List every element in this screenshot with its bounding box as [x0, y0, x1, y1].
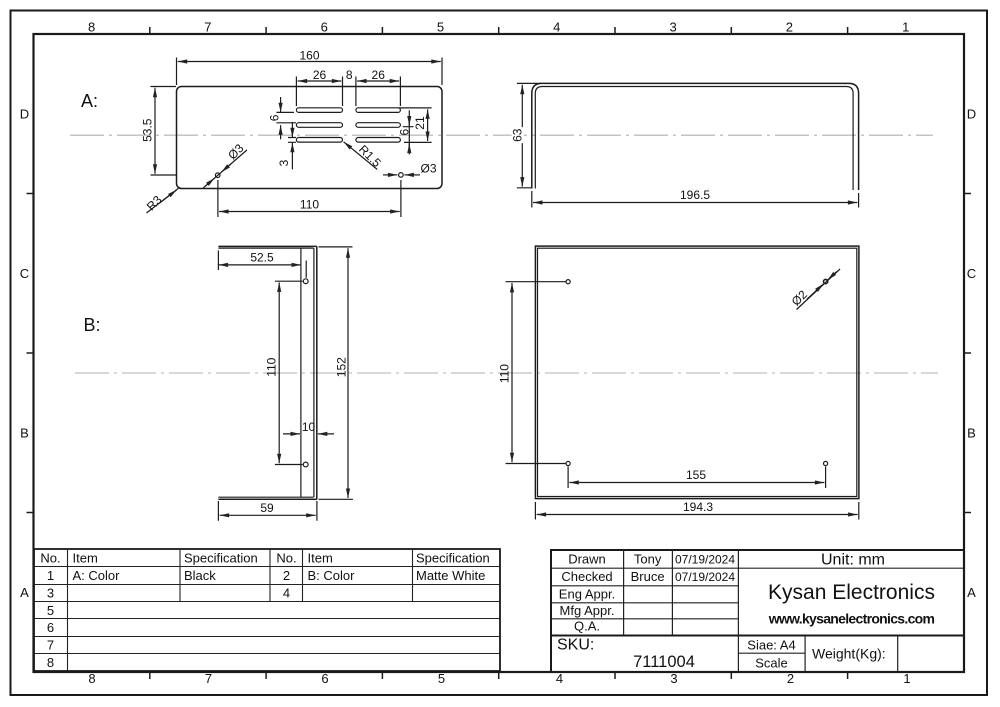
svg-text:8: 8 — [88, 20, 95, 35]
svg-text:8: 8 — [346, 68, 353, 82]
svg-text:110: 110 — [498, 364, 512, 383]
svg-text:3: 3 — [47, 586, 54, 601]
svg-text:C: C — [967, 266, 976, 281]
svg-text:No.: No. — [276, 551, 296, 566]
svg-text:No.: No. — [40, 551, 60, 566]
svg-text:B: B — [20, 426, 29, 441]
svg-text:B:: B: — [84, 315, 101, 335]
svg-text:Q.A.: Q.A. — [574, 619, 600, 634]
svg-text:Item: Item — [73, 551, 98, 566]
svg-text:1: 1 — [902, 20, 909, 35]
svg-text:Ø3: Ø3 — [420, 162, 436, 176]
svg-text:C: C — [20, 266, 29, 281]
svg-text:3: 3 — [669, 20, 676, 35]
svg-text:Specification: Specification — [416, 551, 490, 566]
svg-text:155: 155 — [686, 468, 706, 482]
svg-text:59: 59 — [260, 501, 274, 515]
svg-text:194.3: 194.3 — [683, 500, 713, 514]
svg-text:63: 63 — [511, 128, 525, 142]
svg-text:2: 2 — [787, 671, 794, 686]
svg-text:196.5: 196.5 — [680, 188, 710, 202]
svg-text:3: 3 — [277, 159, 291, 166]
svg-text:Bruce: Bruce — [631, 569, 665, 584]
svg-text:6: 6 — [321, 671, 328, 686]
svg-text:21: 21 — [413, 116, 427, 130]
svg-text:Scale: Scale — [755, 656, 788, 671]
svg-text:07/19/2024: 07/19/2024 — [675, 553, 735, 567]
svg-text:6: 6 — [398, 129, 412, 136]
svg-text:26: 26 — [372, 68, 386, 82]
svg-text:D: D — [20, 107, 29, 122]
svg-text:2: 2 — [786, 20, 793, 35]
svg-text:52.5: 52.5 — [250, 251, 274, 265]
svg-text:4: 4 — [556, 671, 563, 686]
svg-text:07/19/2024: 07/19/2024 — [675, 570, 735, 584]
svg-text:Drawn: Drawn — [568, 552, 606, 567]
svg-text:Eng Appr.: Eng Appr. — [559, 587, 615, 602]
svg-text:www.kysanelectronics.com: www.kysanelectronics.com — [768, 611, 935, 627]
svg-text:4: 4 — [553, 20, 560, 35]
svg-text:6: 6 — [321, 20, 328, 35]
svg-text:6: 6 — [268, 114, 282, 121]
svg-text:A: A — [967, 585, 976, 600]
svg-text:4: 4 — [283, 586, 290, 601]
svg-text:A: A — [20, 585, 29, 600]
svg-text:26: 26 — [313, 68, 327, 82]
svg-text:Siae: A4: Siae: A4 — [747, 638, 795, 653]
svg-text:7111004: 7111004 — [633, 653, 695, 671]
svg-text:2: 2 — [283, 568, 290, 583]
svg-text:Specification: Specification — [184, 551, 258, 566]
svg-text:A: Color: A: Color — [73, 568, 121, 583]
svg-text:7: 7 — [204, 20, 211, 35]
svg-text:Tony: Tony — [634, 552, 662, 567]
svg-text:8: 8 — [88, 671, 95, 686]
svg-text:53.5: 53.5 — [141, 118, 155, 142]
svg-text:8: 8 — [47, 655, 54, 670]
svg-text:Kysan Electronics: Kysan Electronics — [768, 581, 935, 604]
svg-text:5: 5 — [438, 671, 445, 686]
svg-text:5: 5 — [47, 603, 54, 618]
svg-text:1: 1 — [903, 671, 910, 686]
svg-text:Mfg Appr.: Mfg Appr. — [560, 603, 615, 618]
svg-text:Black: Black — [184, 568, 216, 583]
svg-text:SKU:: SKU: — [557, 637, 594, 654]
svg-text:110: 110 — [300, 198, 319, 212]
svg-text:1: 1 — [47, 568, 54, 583]
svg-text:6: 6 — [47, 620, 54, 635]
svg-text:160: 160 — [299, 49, 319, 63]
svg-text:7: 7 — [205, 671, 212, 686]
svg-text:D: D — [967, 107, 976, 122]
svg-text:10: 10 — [302, 420, 316, 434]
svg-text:Item: Item — [308, 551, 333, 566]
svg-text:110: 110 — [265, 357, 279, 376]
svg-text:3: 3 — [670, 671, 677, 686]
svg-text:Matte White: Matte White — [416, 568, 485, 583]
svg-text:A:: A: — [81, 91, 98, 111]
svg-text:B: Color: B: Color — [308, 568, 356, 583]
svg-text:Checked: Checked — [561, 569, 612, 584]
svg-text:Weight(Kg):: Weight(Kg): — [812, 646, 886, 662]
svg-text:Unit: mm: Unit: mm — [821, 552, 885, 569]
svg-text:5: 5 — [437, 20, 444, 35]
svg-text:7: 7 — [47, 638, 54, 653]
svg-text:152: 152 — [335, 357, 349, 377]
svg-text:B: B — [967, 426, 976, 441]
